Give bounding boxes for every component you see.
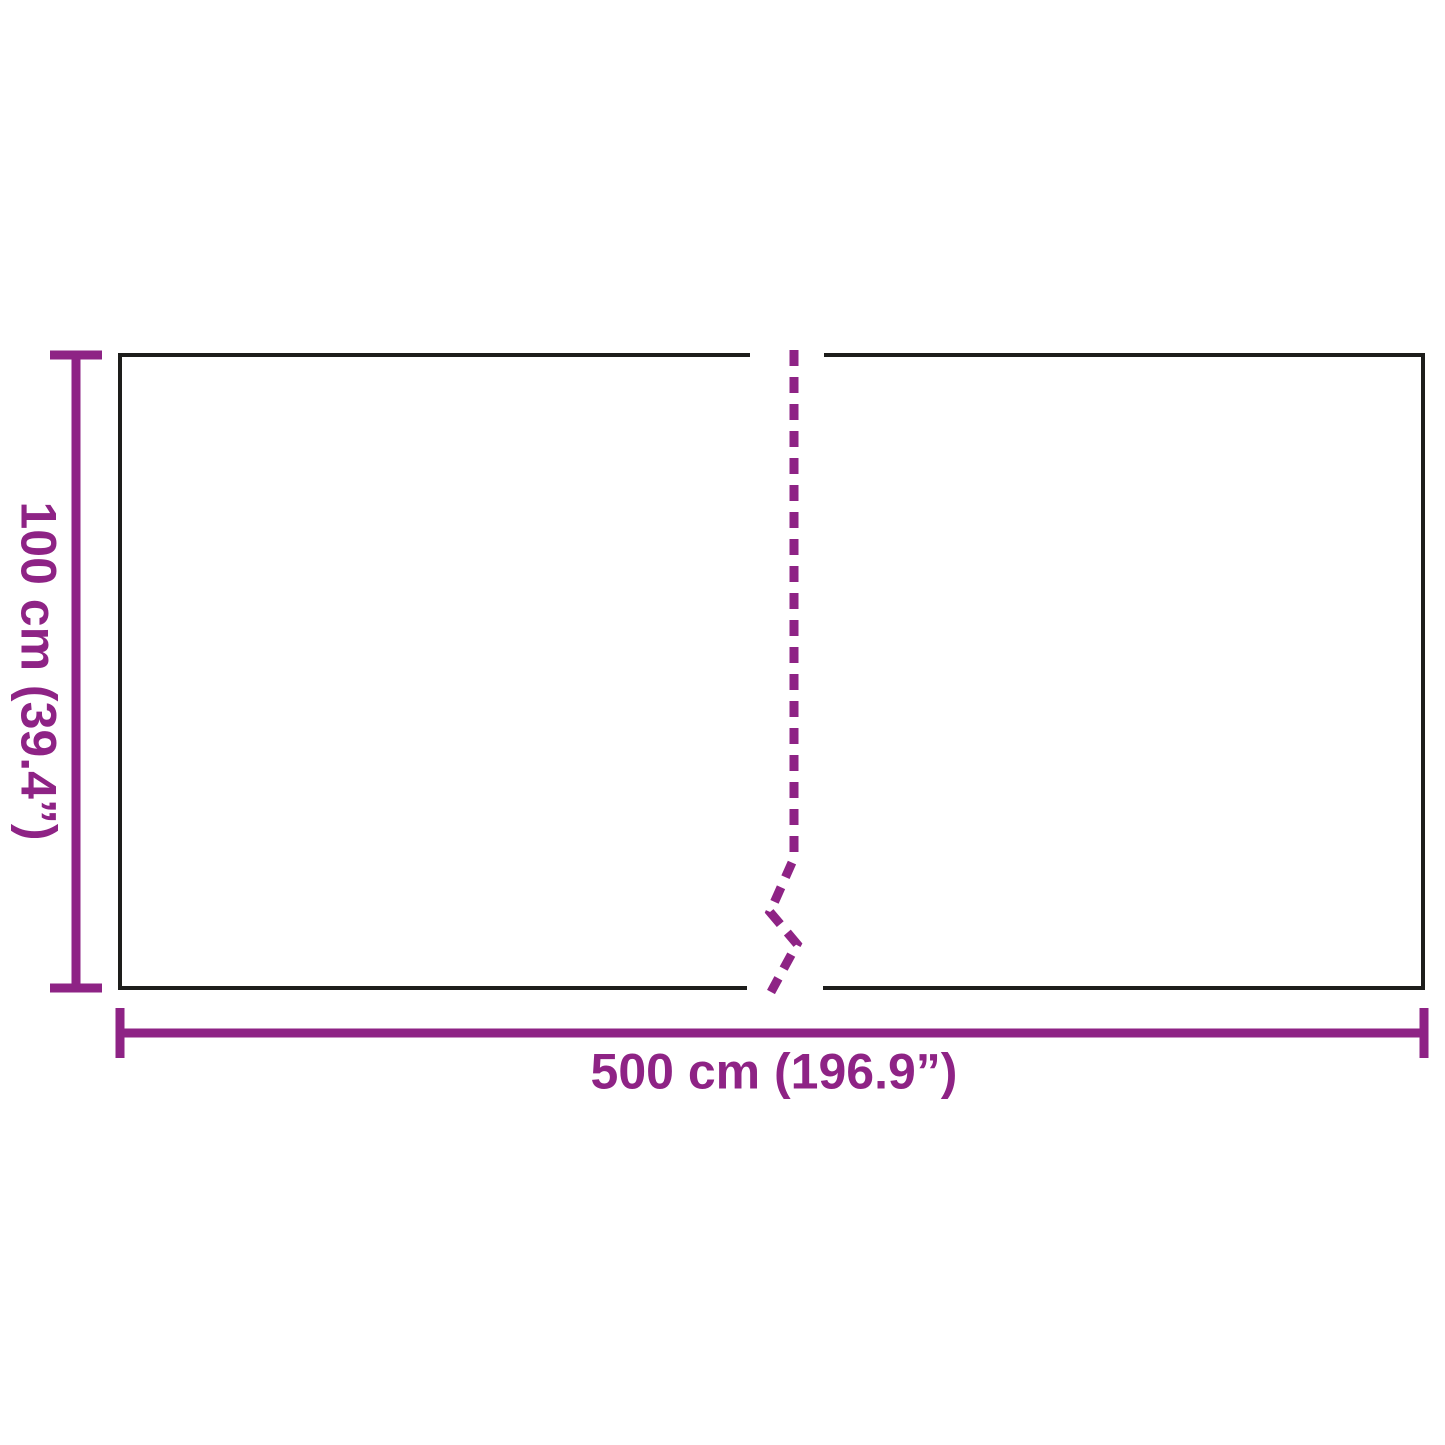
height-dimension-label: 100 cm (39.4”) [11, 501, 66, 840]
panel-outline [120, 355, 1423, 988]
break-dashed-line [770, 350, 797, 992]
width-dimension-label: 500 cm (196.9”) [591, 1045, 958, 1100]
diagram-canvas [0, 0, 1445, 1445]
product-dimension-diagram: 100 cm (39.4”) 500 cm (196.9”) [0, 0, 1445, 1445]
